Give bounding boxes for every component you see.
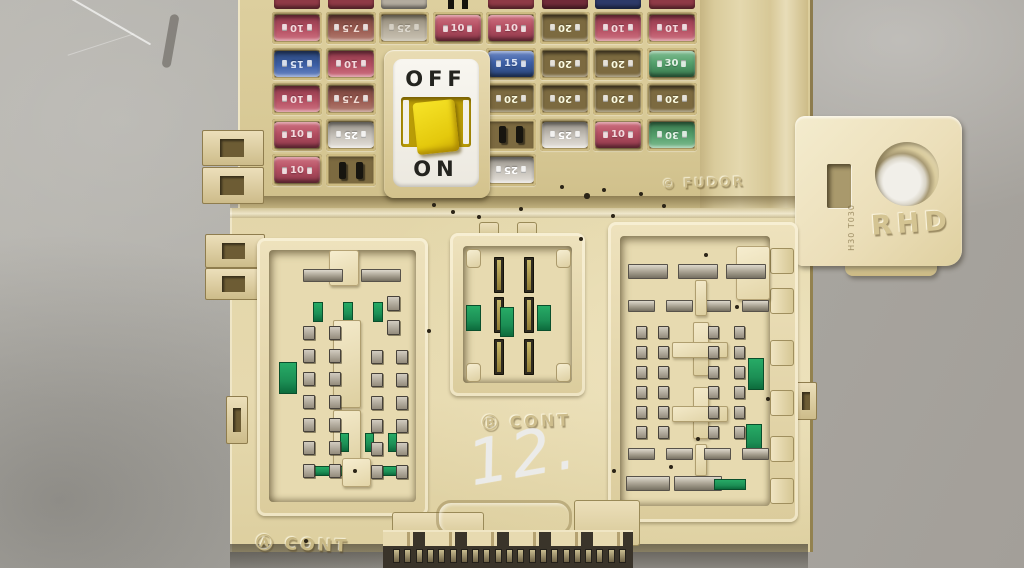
edge-connector-pin — [427, 549, 434, 563]
corner-post — [466, 363, 481, 382]
terminal-pin — [734, 326, 745, 339]
wall-rib — [770, 288, 794, 314]
blade-slot — [524, 339, 534, 375]
key-spine — [695, 280, 707, 316]
scratch-mark — [55, 0, 151, 45]
fuse-slot: 10 — [272, 154, 322, 186]
fuse-slot: 10 — [326, 48, 376, 80]
terminal-pin — [636, 366, 647, 379]
empty-fuse-terminals — [326, 154, 376, 186]
terminal-pin — [708, 386, 719, 399]
edge-connector-pin — [416, 549, 423, 563]
edge-connector-pin — [506, 549, 513, 563]
rhd-marking: RHD — [870, 205, 953, 242]
fuse-15a-blue: 15 — [274, 51, 320, 77]
blade-terminal — [303, 269, 343, 282]
smudge-mark — [161, 14, 179, 69]
terminal-pin — [708, 426, 719, 439]
fuse-25a-silver: 25 — [488, 157, 534, 183]
terminal-pin — [329, 441, 341, 455]
side-clip — [205, 268, 265, 300]
terminal-pin — [303, 372, 315, 386]
terminal-pin — [303, 395, 315, 409]
pcb-slot — [373, 302, 383, 322]
terminal-pin — [708, 366, 719, 379]
fuse-slot: 20 — [593, 48, 643, 80]
blade-terminal — [361, 269, 401, 282]
terminal-pin — [371, 419, 383, 433]
terminal-pin — [329, 326, 341, 340]
terminal-pin — [636, 326, 647, 339]
fuse-partial — [381, 0, 427, 9]
tab-terminal — [742, 300, 769, 312]
tab-terminal — [666, 448, 693, 460]
pcb-bar — [714, 479, 746, 490]
side-clip — [226, 396, 248, 444]
terminal-pin — [636, 346, 647, 359]
terminal-pin — [371, 350, 383, 364]
fuse-25a-silver: 25 — [381, 15, 427, 41]
fuse-slot: 20 — [486, 83, 536, 115]
fuse-10a-red: 10 — [649, 15, 695, 41]
edge-connector-pin — [563, 549, 570, 563]
side-clip — [202, 167, 264, 204]
blade-slot — [494, 257, 504, 293]
terminal-pin — [658, 326, 669, 339]
brand-stamp: © FUDOR — [662, 175, 745, 193]
connector-teeth — [383, 530, 633, 546]
tab-terminal — [704, 448, 731, 460]
cont-a-marking: Ⓐ CONT — [256, 528, 350, 556]
pcb-slot — [748, 358, 764, 390]
blade-terminal — [628, 264, 668, 279]
fuse-slot: 25 — [540, 119, 590, 151]
socket-divider — [342, 458, 371, 487]
switch-window — [401, 97, 471, 147]
tab-terminal — [666, 300, 693, 312]
edge-connector-pin — [585, 549, 592, 563]
blade-terminal — [626, 476, 670, 491]
terminal-pin — [658, 426, 669, 439]
fuse-slot: 20 — [540, 48, 590, 80]
pcb-slot — [343, 302, 353, 322]
terminal-pin — [734, 386, 745, 399]
connector-socket-c — [608, 222, 798, 522]
terminal-pin — [658, 346, 669, 359]
pcb-slot — [313, 302, 323, 322]
terminal-pin — [329, 349, 341, 363]
terminal-pin — [371, 465, 383, 479]
fuse-partial — [488, 0, 534, 9]
fuse-10a-red: 10 — [595, 122, 641, 148]
fuse-slot: 10 — [433, 12, 483, 44]
fuse-20a-yellow: 20 — [542, 86, 588, 112]
terminal-pin — [734, 426, 745, 439]
edge-connector-pin — [551, 549, 558, 563]
mold-code-marking: H30 T030 — [847, 204, 856, 251]
fuse-10a-red: 10 — [274, 15, 320, 41]
terminal-pin — [396, 373, 408, 387]
terminal-pin — [734, 346, 745, 359]
fuse-slot: 10 — [486, 12, 536, 44]
edge-connector-pin — [483, 549, 490, 563]
terminal-pin — [396, 396, 408, 410]
fuse-30a-green: 30 — [649, 51, 695, 77]
blade-terminal — [726, 264, 766, 279]
switch-label-off: OFF — [393, 67, 479, 91]
terminal-pin — [303, 441, 315, 455]
fuse-slot: 30 — [647, 48, 697, 80]
fuse-box-photo: RHD H30 T030 107.52510102010101510152020… — [0, 0, 1024, 568]
switch-lever — [412, 99, 459, 155]
terminal-pin — [387, 296, 400, 311]
key-cross — [672, 342, 728, 358]
terminal-pin — [734, 406, 745, 419]
terminal-pin — [708, 406, 719, 419]
terminal-pin — [371, 442, 383, 456]
wall-rib — [770, 390, 794, 416]
terminal-pin — [708, 346, 719, 359]
wall-rib — [770, 478, 794, 504]
terminal-pin — [303, 349, 315, 363]
fuse-10a-red: 10 — [595, 15, 641, 41]
fuse-slot: 10 — [272, 83, 322, 115]
pcb-slot — [279, 362, 297, 394]
side-clip — [202, 130, 264, 166]
edge-connector-pin — [404, 549, 411, 563]
terminal-pin — [387, 320, 400, 335]
fuse-10a-red: 10 — [274, 157, 320, 183]
edge-connector — [383, 534, 633, 568]
terminal-pin — [708, 326, 719, 339]
fuse-10a-red: 10 — [274, 86, 320, 112]
pcb-slot — [537, 305, 551, 331]
fuse-slot: 25 — [326, 119, 376, 151]
fuse-partial — [542, 0, 588, 9]
blade-terminal — [678, 264, 718, 279]
fuse-slot: 15 — [486, 48, 536, 80]
dirt-specks — [0, 0, 2, 2]
tab-terminal — [704, 300, 731, 312]
edge-connector-pin — [574, 549, 581, 563]
fuse-10a-red: 10 — [435, 15, 481, 41]
fuse-slot: 25 — [486, 154, 536, 186]
edge-connector-pin — [619, 549, 626, 563]
blade-slot — [494, 339, 504, 375]
terminal-pin — [658, 406, 669, 419]
fuse-partial — [274, 0, 320, 9]
fuse-slot: 10 — [593, 119, 643, 151]
fuse-slot: 10 — [272, 119, 322, 151]
edge-connector-pin — [393, 549, 400, 563]
off-on-switch: OFF ON — [384, 50, 490, 198]
terminal-pin — [371, 373, 383, 387]
fuse-20a-yellow: 20 — [488, 86, 534, 112]
fuse-slot: 7.5 — [326, 12, 376, 44]
fuse-partial — [328, 0, 374, 9]
fuse-slot: 20 — [540, 12, 590, 44]
terminal-pin — [396, 350, 408, 364]
blade-slot — [524, 297, 534, 333]
fuse-slot: 30 — [647, 119, 697, 151]
wall-rib — [770, 436, 794, 462]
terminal-pin — [303, 326, 315, 340]
fuse-15a-blue: 15 — [488, 51, 534, 77]
fuse-20a-yellow: 20 — [595, 51, 641, 77]
edge-connector-pin — [540, 549, 547, 563]
fuse-7.5a-brown: 7.5 — [328, 15, 374, 41]
tab-terminal — [742, 448, 769, 460]
wall-rib — [770, 340, 794, 366]
fuse-terminals-partial — [435, 0, 481, 9]
terminal-pin — [329, 418, 341, 432]
fuse-20a-yellow: 20 — [542, 15, 588, 41]
side-clip — [795, 382, 817, 420]
empty-fuse-terminals — [486, 119, 536, 151]
fuse-25a-silver: 25 — [328, 122, 374, 148]
corner-post — [556, 249, 571, 268]
fuse-slot: 25 — [379, 12, 429, 44]
fuse-slot: 20 — [540, 83, 590, 115]
fuse-7.5a-brown: 7.5 — [328, 86, 374, 112]
fuse-20a-yellow: 20 — [542, 51, 588, 77]
terminal-pin — [658, 366, 669, 379]
terminal-pin — [303, 418, 315, 432]
fuse-10a-red: 10 — [328, 51, 374, 77]
corner-post — [466, 249, 481, 268]
edge-connector-pin — [517, 549, 524, 563]
edge-connector-pin — [529, 549, 536, 563]
edge-connector-pin — [450, 549, 457, 563]
fuse-slot: 20 — [593, 83, 643, 115]
scratch-mark — [68, 33, 135, 56]
terminal-pin — [636, 386, 647, 399]
side-clip — [205, 234, 265, 268]
fuse-slot: 10 — [593, 12, 643, 44]
wall-rib — [770, 248, 794, 274]
terminal-pin — [303, 464, 315, 478]
fuse-10a-red: 10 — [274, 122, 320, 148]
fuse-25a-silver: 25 — [542, 122, 588, 148]
terminal-pin — [396, 442, 408, 456]
terminal-pin — [371, 396, 383, 410]
tab-terminal — [628, 300, 655, 312]
switch-label-on: ON — [393, 157, 479, 181]
key-cross — [672, 406, 728, 422]
edge-connector-pin — [495, 549, 502, 563]
connector-socket-a — [257, 238, 428, 516]
fuse-partial — [595, 0, 641, 9]
terminal-pin — [658, 386, 669, 399]
blade-slot — [524, 257, 534, 293]
edge-connector-pin — [608, 549, 615, 563]
fuse-10a-red: 10 — [488, 15, 534, 41]
pcb-slot — [500, 307, 514, 337]
fuse-slot: 10 — [647, 12, 697, 44]
terminal-pin — [329, 372, 341, 386]
pcb-slot — [466, 305, 481, 331]
mounting-tab: RHD H30 T030 — [795, 116, 962, 266]
pcb-slot — [340, 433, 349, 452]
terminal-pin — [636, 406, 647, 419]
fuse-slot: 20 — [647, 83, 697, 115]
terminal-pin — [636, 426, 647, 439]
edge-connector-pin — [472, 549, 479, 563]
fuse-slot: 10 — [272, 12, 322, 44]
terminal-pin — [396, 465, 408, 479]
fuse-20a-yellow: 20 — [649, 86, 695, 112]
terminal-pin — [329, 464, 341, 478]
mounting-slot — [827, 164, 851, 208]
fuse-30a-green: 30 — [649, 122, 695, 148]
corner-post — [556, 363, 571, 382]
terminal-pin — [734, 366, 745, 379]
fuse-partial — [649, 0, 695, 9]
terminal-pin — [396, 419, 408, 433]
fuse-slot: 15 — [272, 48, 322, 80]
edge-connector-pin — [438, 549, 445, 563]
mounting-hole — [875, 142, 939, 206]
edge-connector-pin — [596, 549, 603, 563]
edge-connector-pin — [461, 549, 468, 563]
connector-socket-b — [450, 233, 585, 396]
tab-terminal — [628, 448, 655, 460]
switch-faceplate: OFF ON — [393, 59, 479, 187]
terminal-pin — [329, 395, 341, 409]
fuse-20a-yellow: 20 — [595, 86, 641, 112]
fuse-slot: 7.5 — [326, 83, 376, 115]
